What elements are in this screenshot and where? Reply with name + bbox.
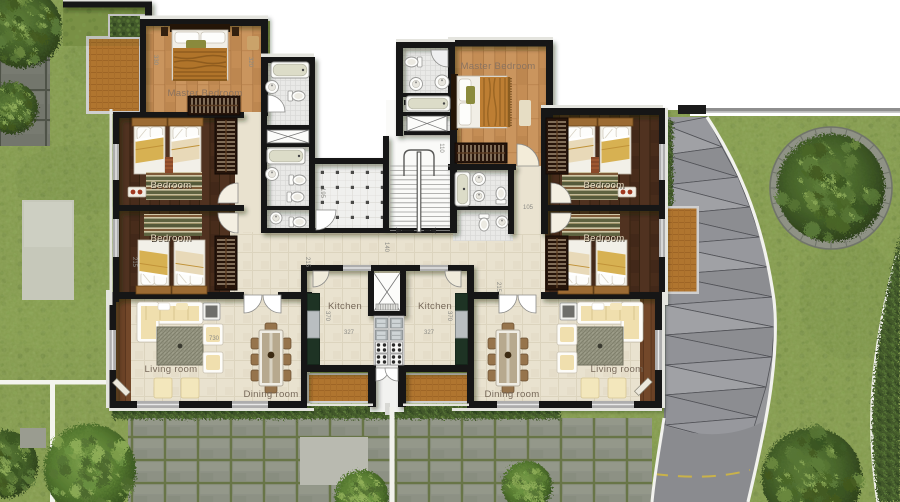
svg-text:320: 320 (247, 57, 253, 68)
svg-text:Master Bedroom: Master Bedroom (460, 61, 535, 72)
svg-text:Master Bedroom: Master Bedroom (167, 88, 242, 99)
svg-text:215: 215 (131, 257, 137, 268)
svg-text:Dining room: Dining room (243, 389, 298, 400)
svg-text:Bedroom: Bedroom (583, 180, 624, 191)
svg-text:195: 195 (319, 188, 325, 199)
svg-text:327: 327 (424, 330, 435, 336)
svg-text:327: 327 (344, 330, 355, 336)
svg-text:Bedroom: Bedroom (150, 180, 191, 191)
svg-text:Dining room: Dining room (484, 389, 539, 400)
svg-text:730: 730 (209, 336, 220, 342)
svg-text:370: 370 (446, 311, 452, 322)
svg-text:Kitchen: Kitchen (328, 301, 362, 312)
svg-text:Bedroom: Bedroom (150, 233, 191, 244)
svg-text:Living room: Living room (591, 364, 644, 375)
svg-text:215: 215 (304, 257, 310, 268)
svg-text:Living room: Living room (145, 364, 198, 375)
svg-text:370: 370 (324, 311, 330, 322)
svg-text:215: 215 (495, 282, 501, 293)
svg-text:105: 105 (523, 205, 534, 211)
svg-text:330: 330 (152, 55, 158, 66)
svg-text:110: 110 (438, 143, 444, 153)
svg-text:140: 140 (383, 242, 389, 253)
svg-text:Bedroom: Bedroom (583, 233, 624, 244)
